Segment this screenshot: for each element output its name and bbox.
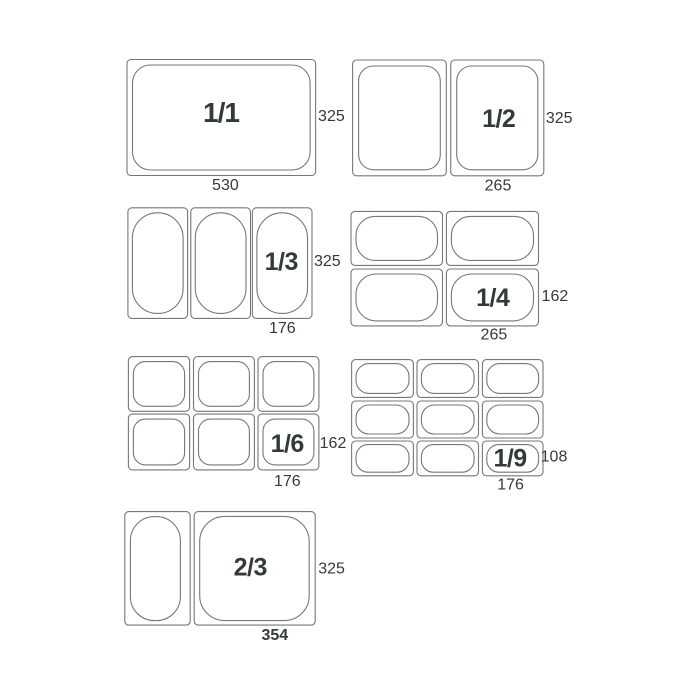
svg-text:325: 325 (318, 560, 345, 577)
svg-text:162: 162 (542, 288, 569, 305)
svg-text:325: 325 (314, 253, 341, 270)
svg-text:1/6: 1/6 (271, 430, 304, 458)
svg-text:265: 265 (485, 178, 512, 195)
svg-text:530: 530 (212, 177, 239, 194)
svg-text:176: 176 (274, 473, 301, 490)
svg-text:162: 162 (320, 435, 347, 452)
svg-text:325: 325 (318, 108, 345, 125)
svg-text:1/9: 1/9 (493, 445, 526, 473)
svg-text:265: 265 (481, 327, 508, 344)
svg-text:354: 354 (261, 627, 288, 644)
svg-text:176: 176 (269, 320, 296, 337)
svg-text:108: 108 (541, 448, 568, 465)
svg-text:2/3: 2/3 (234, 554, 267, 582)
svg-text:1/3: 1/3 (265, 248, 298, 276)
svg-text:1/1: 1/1 (203, 97, 239, 128)
svg-text:325: 325 (546, 110, 573, 127)
svg-text:176: 176 (497, 477, 524, 494)
svg-text:1/4: 1/4 (476, 284, 510, 312)
svg-text:1/2: 1/2 (482, 105, 515, 133)
